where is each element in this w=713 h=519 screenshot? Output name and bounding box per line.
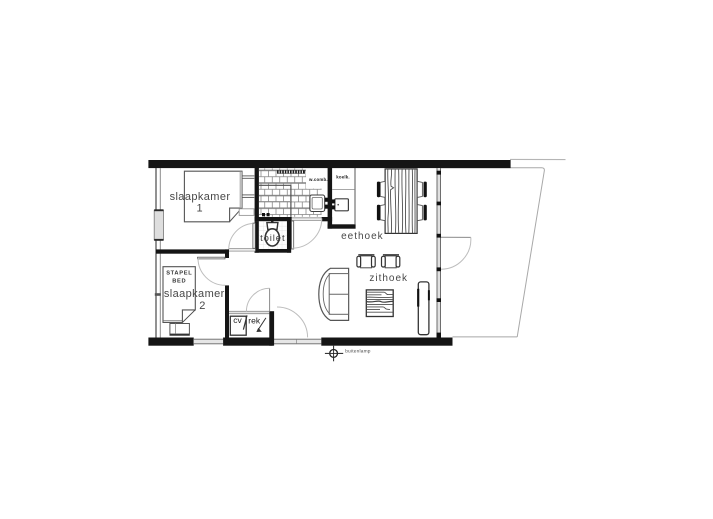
svg-text:1: 1 bbox=[196, 202, 202, 214]
svg-text:rek: rek bbox=[248, 316, 261, 326]
svg-text:w.comb.: w.comb. bbox=[308, 177, 328, 182]
svg-text:slaapkamer: slaapkamer bbox=[164, 288, 225, 300]
svg-text:cv: cv bbox=[233, 315, 242, 325]
svg-text:koelk.: koelk. bbox=[336, 175, 350, 180]
svg-text:zithoek: zithoek bbox=[369, 273, 408, 284]
svg-text:slaapkamer: slaapkamer bbox=[170, 191, 231, 203]
svg-text:2: 2 bbox=[199, 300, 205, 312]
svg-text:BED: BED bbox=[172, 279, 186, 285]
svg-text:buitenlamp: buitenlamp bbox=[345, 349, 371, 355]
svg-text:STAPEL: STAPEL bbox=[166, 271, 192, 277]
svg-text:eethoek: eethoek bbox=[341, 231, 384, 242]
svg-text:toilet: toilet bbox=[260, 233, 285, 244]
